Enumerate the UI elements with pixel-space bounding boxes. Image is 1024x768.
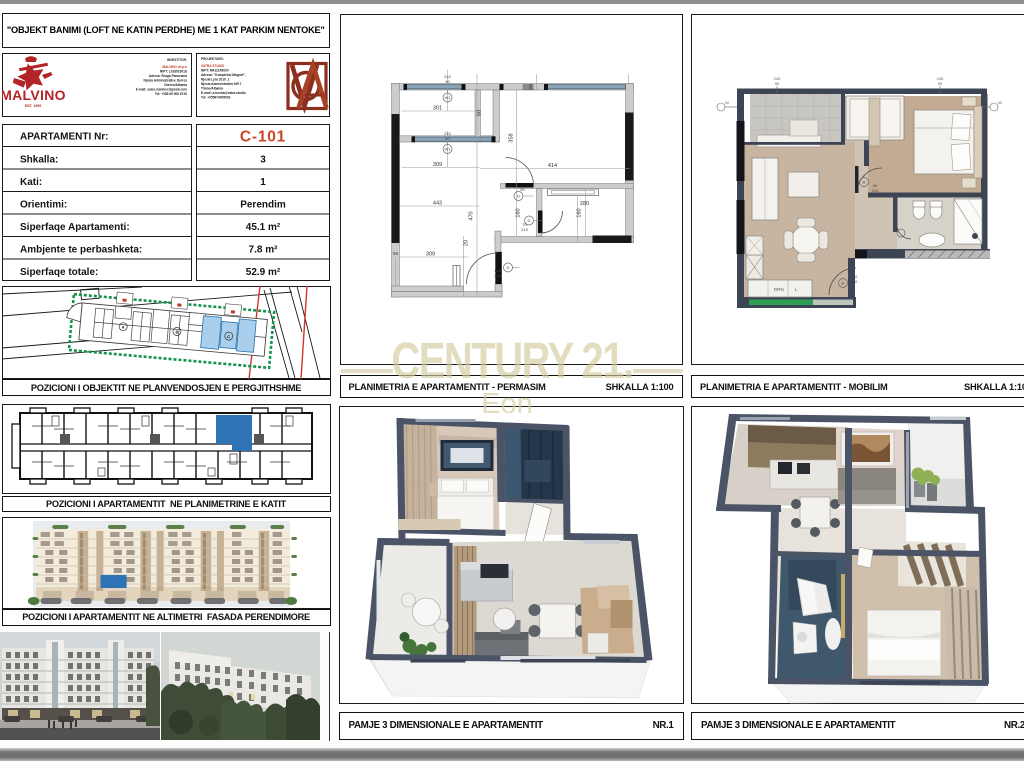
svg-text:INVESTITOR:: INVESTITOR: bbox=[166, 58, 186, 62]
svg-text:470: 470 bbox=[468, 211, 474, 220]
svg-text:W: W bbox=[725, 100, 729, 105]
svg-text:52.9 m²: 52.9 m² bbox=[246, 267, 281, 278]
svg-text:210: 210 bbox=[494, 273, 501, 278]
svg-text:7.8 m²: 7.8 m² bbox=[249, 244, 279, 255]
svg-text:Perendim: Perendim bbox=[240, 199, 286, 210]
svg-text:309: 309 bbox=[425, 252, 434, 258]
svg-text:Kati:: Kati: bbox=[20, 177, 42, 188]
svg-text:90: 90 bbox=[445, 136, 450, 141]
svg-text:210: 210 bbox=[872, 188, 879, 193]
svg-text:Durres/Albania: Durres/Albania bbox=[164, 83, 187, 87]
svg-text:160: 160 bbox=[576, 208, 582, 217]
svg-text:Adresa: Rruga Panorama: Adresa: Rruga Panorama bbox=[148, 74, 186, 78]
svg-text:20: 20 bbox=[463, 240, 469, 246]
svg-text:W1: W1 bbox=[444, 95, 451, 100]
svg-text:60: 60 bbox=[476, 110, 482, 116]
svg-text:D: D bbox=[842, 281, 845, 286]
svg-text:Siperfaqe totale:: Siperfaqe totale: bbox=[20, 267, 98, 278]
svg-text:90: 90 bbox=[445, 79, 450, 84]
svg-text:E-mail: sales.malvino@gmail.co: E-mail: sales.malvino@gmail.com bbox=[135, 88, 186, 92]
svg-text:210: 210 bbox=[521, 227, 528, 232]
svg-text:45.1 m²: 45.1 m² bbox=[246, 222, 281, 233]
svg-text:B: B bbox=[175, 329, 178, 334]
svg-text:3: 3 bbox=[260, 154, 266, 165]
svg-text:W1: W1 bbox=[444, 147, 451, 152]
svg-text:DRN: DRN bbox=[774, 287, 784, 292]
svg-text:280: 280 bbox=[579, 201, 588, 207]
svg-text:210: 210 bbox=[851, 279, 858, 284]
svg-text:D: D bbox=[527, 218, 530, 223]
svg-text:D: D bbox=[517, 194, 520, 199]
svg-text:301: 301 bbox=[432, 106, 441, 112]
svg-text:Tel: +355 69 500 6720: Tel: +355 69 500 6720 bbox=[154, 92, 186, 96]
svg-text:Orientimi:: Orientimi: bbox=[20, 199, 67, 210]
svg-text:358: 358 bbox=[508, 133, 514, 142]
svg-text:C: C bbox=[227, 333, 230, 338]
svg-text:Ambjente te perbashketa:: Ambjente te perbashketa: bbox=[20, 244, 142, 255]
svg-text:58: 58 bbox=[392, 251, 398, 256]
svg-text:90: 90 bbox=[938, 81, 943, 86]
svg-text:20: 20 bbox=[529, 84, 535, 90]
svg-text:160: 160 bbox=[515, 208, 521, 217]
svg-text:MALVINO sh.p.k: MALVINO sh.p.k bbox=[162, 65, 187, 69]
svg-text:APARTAMENTI Nr:: APARTAMENTI Nr: bbox=[20, 131, 109, 142]
svg-text:Njesia Administrative Durres: Njesia Administrative Durres bbox=[143, 79, 187, 83]
svg-text:Shkalla:: Shkalla: bbox=[20, 154, 58, 165]
svg-text:Siperfaqe Apartamenti:: Siperfaqe Apartamenti: bbox=[20, 222, 130, 233]
svg-text:1: 1 bbox=[260, 177, 266, 188]
svg-text:443: 443 bbox=[432, 201, 441, 207]
svg-text:C-101: C-101 bbox=[240, 128, 286, 145]
svg-text:309: 309 bbox=[432, 162, 441, 168]
svg-text:A: A bbox=[121, 324, 124, 329]
svg-text:414: 414 bbox=[547, 163, 556, 169]
svg-text:90: 90 bbox=[520, 187, 525, 192]
svg-text:NIPT: L01801501S: NIPT: L01801501S bbox=[159, 70, 186, 74]
svg-text:D: D bbox=[863, 180, 866, 185]
svg-text:W: W bbox=[998, 100, 1002, 105]
svg-text:90: 90 bbox=[775, 81, 780, 86]
svg-text:D: D bbox=[506, 265, 509, 270]
